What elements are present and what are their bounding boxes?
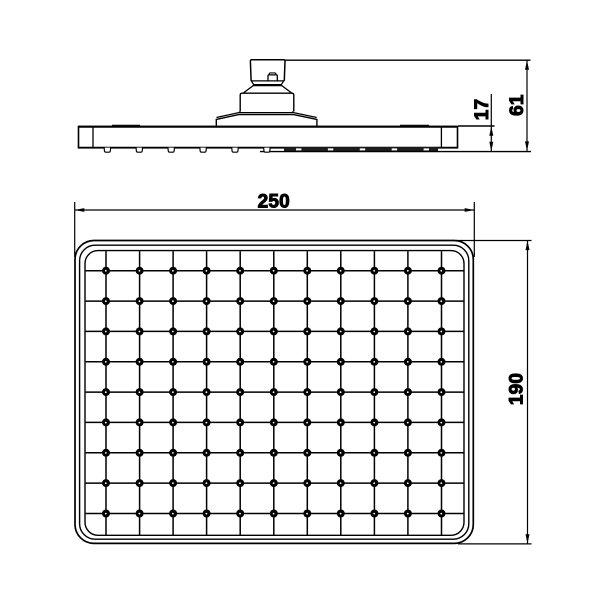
svg-text:17: 17 (472, 99, 493, 121)
svg-text:250: 250 (258, 191, 290, 212)
svg-text:61: 61 (507, 94, 528, 116)
svg-text:190: 190 (507, 373, 528, 405)
